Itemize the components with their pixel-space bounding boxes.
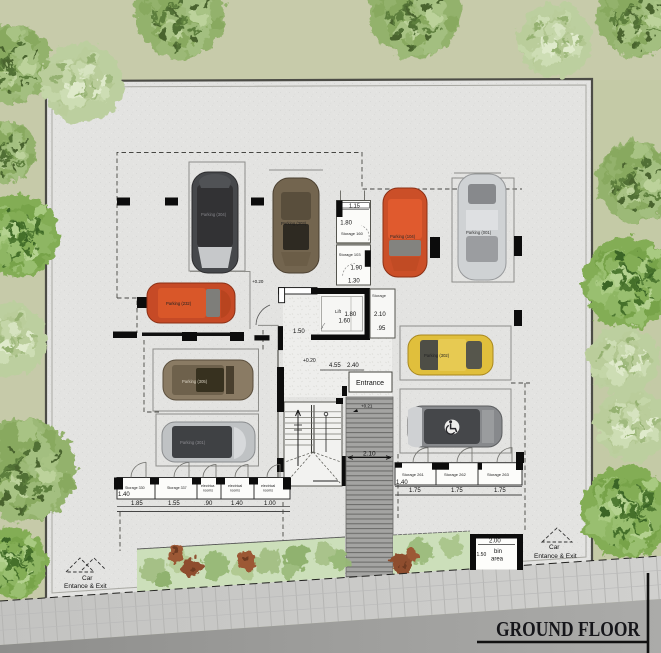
svg-text:Parking (104): Parking (104): [390, 234, 416, 239]
svg-text:Parking (302): Parking (302): [424, 353, 450, 358]
svg-text:1.80: 1.80: [345, 312, 357, 318]
svg-text:rooms: rooms: [263, 489, 273, 493]
svg-text:Entrance: Entrance: [356, 380, 384, 387]
svg-text:Storage 160: Storage 160: [341, 231, 364, 236]
svg-text:Car: Car: [549, 544, 560, 551]
svg-text:1.30: 1.30: [348, 279, 360, 285]
svg-text:GROUND FLOOR: GROUND FLOOR: [496, 617, 641, 641]
svg-text:1.40: 1.40: [396, 480, 408, 486]
svg-text:+0.20: +0.20: [303, 358, 316, 364]
svg-text:electrical: electrical: [228, 484, 242, 488]
svg-text:.95: .95: [377, 326, 386, 332]
svg-text:Parking (301): Parking (301): [180, 440, 206, 445]
svg-text:electrica: electrica: [201, 484, 214, 488]
svg-text:rooms: rooms: [230, 489, 240, 493]
svg-text:Lift: Lift: [335, 309, 342, 314]
svg-text:Car: Car: [82, 575, 93, 582]
svg-text:Storage 262: Storage 262: [444, 472, 467, 477]
svg-text:2.10: 2.10: [363, 451, 376, 458]
svg-text:.90: .90: [204, 501, 213, 507]
svg-text:Parking (303): Parking (303): [281, 221, 307, 226]
svg-text:1.50: 1.50: [477, 552, 487, 558]
svg-text:area: area: [491, 557, 504, 563]
svg-text:Storage 330: Storage 330: [125, 486, 145, 490]
svg-text:1.90: 1.90: [351, 266, 363, 272]
svg-text:1.40: 1.40: [231, 501, 243, 507]
svg-text:Storage 263: Storage 263: [487, 472, 510, 477]
svg-text:1.55: 1.55: [168, 501, 180, 507]
svg-text:2.10: 2.10: [374, 312, 386, 318]
svg-text:+0.21: +0.21: [361, 404, 373, 409]
svg-text:Entance & Exit: Entance & Exit: [534, 553, 577, 560]
svg-text:Parking (305): Parking (305): [182, 379, 208, 384]
svg-text:1.80: 1.80: [340, 221, 352, 227]
svg-text:1.75: 1.75: [451, 488, 463, 494]
svg-text:Parking (232): Parking (232): [166, 301, 192, 306]
svg-text:Entance & Exit: Entance & Exit: [64, 583, 107, 590]
svg-text:+0.20: +0.20: [252, 279, 264, 284]
svg-text:Storage: Storage: [372, 293, 387, 298]
svg-text:1.75: 1.75: [494, 488, 506, 494]
svg-text:Parking (304): Parking (304): [201, 212, 227, 217]
svg-text:bin: bin: [494, 549, 502, 555]
svg-text:1.00: 1.00: [264, 501, 276, 507]
svg-text:1.40: 1.40: [118, 492, 130, 498]
svg-text:Storage 261: Storage 261: [402, 472, 425, 477]
svg-text:4.55: 4.55: [329, 363, 341, 369]
svg-text:1.50: 1.50: [293, 329, 305, 335]
svg-text:2.00: 2.00: [489, 539, 501, 545]
svg-text:1.60: 1.60: [339, 319, 351, 325]
svg-text:Storage 103: Storage 103: [339, 252, 362, 257]
svg-text:Storage 337: Storage 337: [167, 486, 187, 490]
svg-text:1.75: 1.75: [409, 488, 421, 494]
svg-text:1.15: 1.15: [349, 203, 360, 209]
svg-text:rooms: rooms: [203, 489, 213, 493]
svg-text:Parking (001): Parking (001): [466, 230, 492, 235]
svg-text:electrical: electrical: [261, 484, 275, 488]
svg-text:1.85: 1.85: [131, 501, 143, 507]
svg-text:2.40: 2.40: [347, 363, 359, 369]
